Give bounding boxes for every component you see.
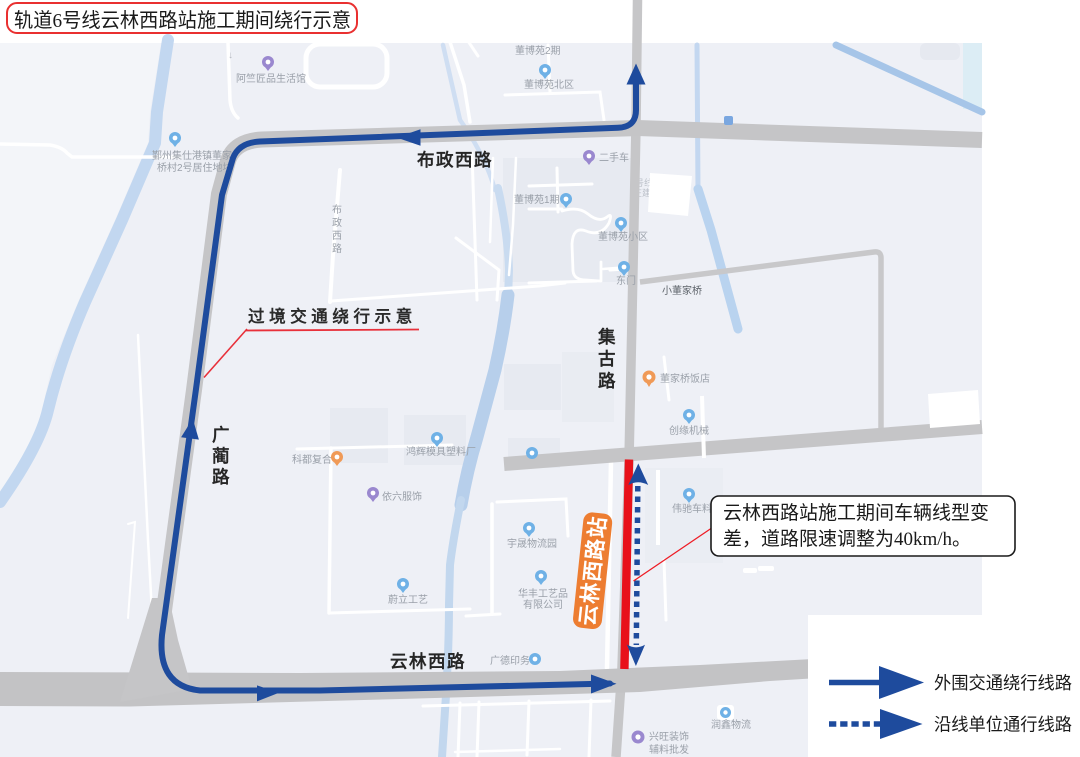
svg-text:轨道6号线云林西路站施工期间绕行示意: 轨道6号线云林西路站施工期间绕行示意 <box>14 9 351 32</box>
svg-text:鸿辉模具塑料厂: 鸿辉模具塑料厂 <box>406 445 476 458</box>
svg-text:政: 政 <box>332 216 342 229</box>
svg-text:蔚立工艺: 蔚立工艺 <box>388 593 428 606</box>
svg-text:科都复合: 科都复合 <box>292 453 332 466</box>
svg-text:董博苑小区: 董博苑小区 <box>598 230 648 243</box>
svg-text:沿线单位通行线路: 沿线单位通行线路 <box>934 715 1072 735</box>
svg-text:东门: 东门 <box>616 274 636 287</box>
svg-text:集: 集 <box>597 327 616 347</box>
svg-text:伟驰车料: 伟驰车料 <box>672 502 712 515</box>
svg-text:布: 布 <box>332 204 342 216</box>
svg-text:创缘机械: 创缘机械 <box>669 424 709 437</box>
svg-text:云林西路站施工期间车辆线型变: 云林西路站施工期间车辆线型变 <box>723 502 989 524</box>
svg-text:鄞州集仕港镇董家: 鄞州集仕港镇董家 <box>152 149 232 162</box>
svg-text:古: 古 <box>598 349 616 369</box>
svg-text:二手车: 二手车 <box>599 151 629 164</box>
svg-text:兴旺装饰: 兴旺装饰 <box>649 730 689 743</box>
svg-text:差，道路限速调整为40km/h。: 差，道路限速调整为40km/h。 <box>723 528 971 550</box>
svg-text:蔺: 蔺 <box>212 446 230 466</box>
svg-text:云林西路: 云林西路 <box>390 652 466 672</box>
svg-text:路: 路 <box>332 242 342 255</box>
svg-text:华丰工艺品: 华丰工艺品 <box>518 587 568 600</box>
svg-text:外围交通绕行线路: 外围交通绕行线路 <box>934 673 1072 693</box>
svg-text:阿竺匠品生活馆: 阿竺匠品生活馆 <box>236 72 306 85</box>
svg-text:依六服饰: 依六服饰 <box>382 490 422 503</box>
svg-text:辅料批发: 辅料批发 <box>649 743 689 756</box>
svg-text:西: 西 <box>332 231 342 242</box>
svg-text:桥村2号居住地块: 桥村2号居住地块 <box>157 161 233 174</box>
svg-text:有限公司: 有限公司 <box>523 598 563 611</box>
svg-text:小董家桥: 小董家桥 <box>662 284 702 297</box>
svg-text:宇晟物流园: 宇晟物流园 <box>507 537 557 550</box>
svg-text:路: 路 <box>598 371 616 391</box>
svg-text:广德印务: 广德印务 <box>490 654 530 667</box>
svg-text:董博苑北区: 董博苑北区 <box>524 78 574 91</box>
svg-text:董家桥饭店: 董家桥饭店 <box>660 372 710 385</box>
svg-text:↓: ↓ <box>228 50 233 61</box>
svg-text:过境交通绕行示意: 过境交通绕行示意 <box>248 306 417 326</box>
svg-text:广: 广 <box>212 425 230 445</box>
svg-text:董博苑2期: 董博苑2期 <box>515 44 561 57</box>
svg-text:路: 路 <box>212 467 230 487</box>
svg-text:董博苑1期: 董博苑1期 <box>514 193 560 206</box>
svg-text:布政西路: 布政西路 <box>417 150 493 170</box>
svg-text:润鑫物流: 润鑫物流 <box>711 718 751 731</box>
